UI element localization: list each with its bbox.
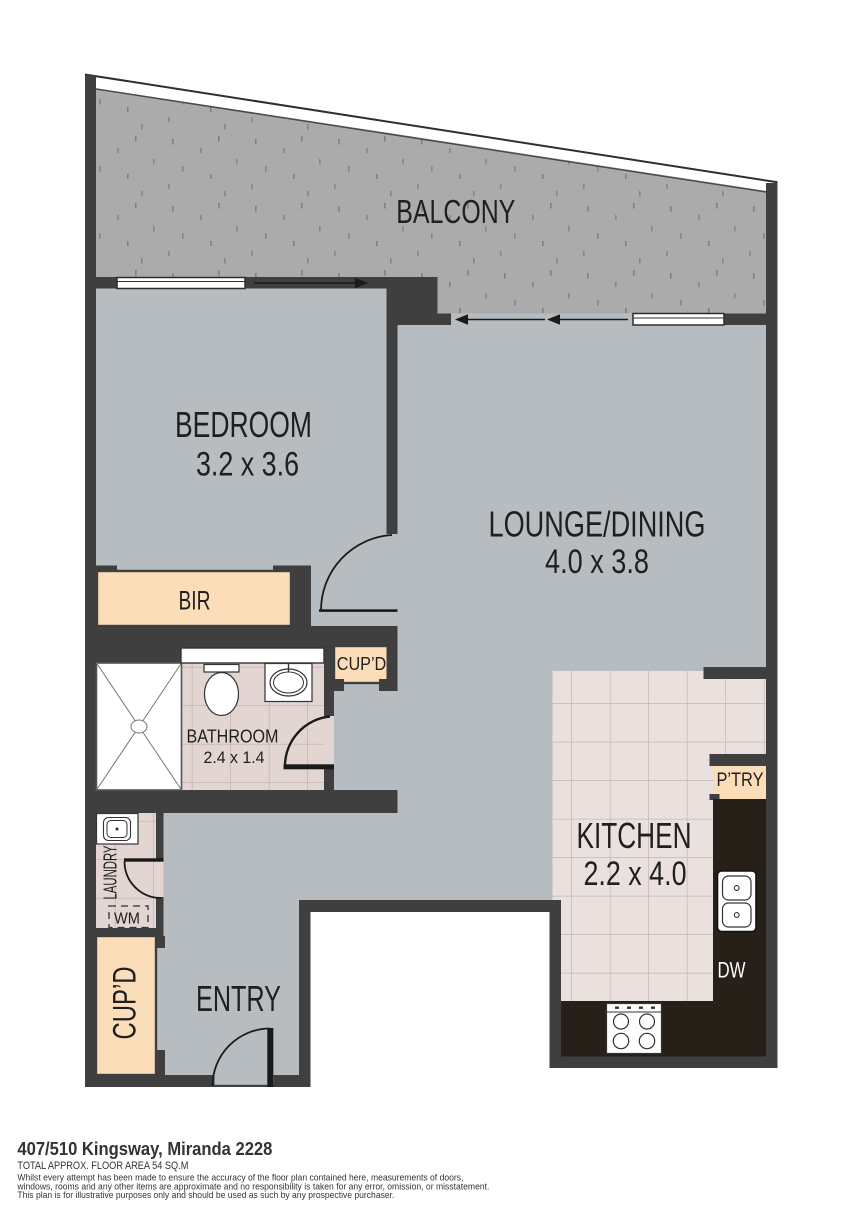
svg-text:LAUNDRY: LAUNDRY <box>101 846 121 900</box>
svg-text:2.2 x 4.0: 2.2 x 4.0 <box>584 855 687 893</box>
svg-text:This plan is for illustrative: This plan is for illustrative purposes o… <box>17 1190 394 1200</box>
svg-text:407/510 Kingsway, Miranda 2228: 407/510 Kingsway, Miranda 2228 <box>17 1138 272 1159</box>
svg-text:CUP’D: CUP’D <box>337 653 387 674</box>
svg-text:WM: WM <box>114 911 140 928</box>
svg-text:4.0 x 3.8: 4.0 x 3.8 <box>545 543 649 581</box>
svg-text:CUP’D: CUP’D <box>107 967 143 1040</box>
svg-text:BATHROOM: BATHROOM <box>187 726 279 747</box>
svg-text:TOTAL APPROX. FLOOR AREA 54 SQ: TOTAL APPROX. FLOOR AREA 54 SQ.M <box>17 1160 188 1172</box>
svg-text:BIR: BIR <box>179 586 211 616</box>
svg-text:LOUNGE/DINING: LOUNGE/DINING <box>489 504 706 545</box>
svg-text:KITCHEN: KITCHEN <box>577 815 692 856</box>
svg-text:BEDROOM: BEDROOM <box>175 404 312 445</box>
svg-text:3.2 x 3.6: 3.2 x 3.6 <box>196 446 299 484</box>
svg-text:BALCONY: BALCONY <box>396 194 515 231</box>
svg-text:DW: DW <box>718 958 746 983</box>
svg-text:ENTRY: ENTRY <box>196 978 281 1019</box>
svg-text:P’TRY: P’TRY <box>717 770 764 791</box>
svg-text:2.4 x 1.4: 2.4 x 1.4 <box>204 748 265 767</box>
